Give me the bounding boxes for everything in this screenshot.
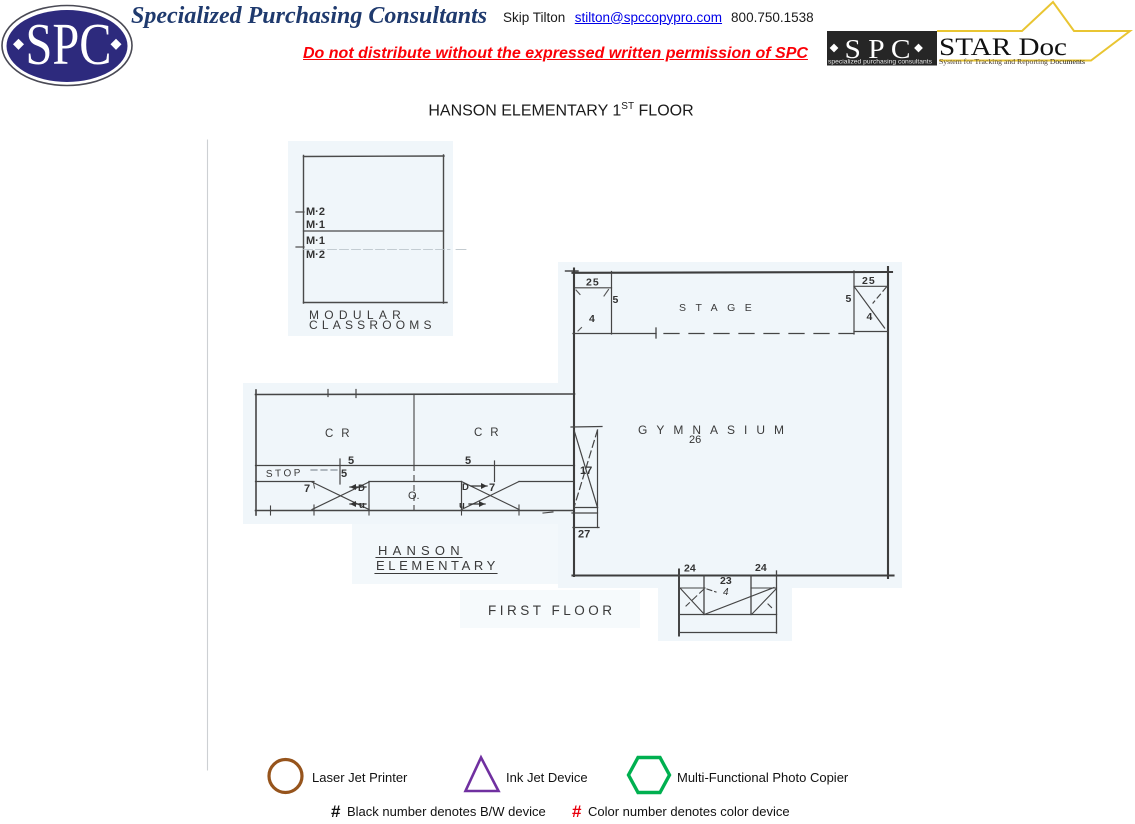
svg-text:O.: O. (408, 490, 420, 502)
svg-text:Multi-Functional Photo Copier: Multi-Functional Photo Copier (677, 770, 849, 785)
svg-text:M·1: M·1 (306, 235, 325, 247)
svg-text:Ink Jet Device: Ink Jet Device (506, 770, 588, 785)
svg-text:M·2: M·2 (306, 249, 325, 261)
svg-text:Laser Jet Printer: Laser Jet Printer (312, 770, 408, 785)
svg-text:D: D (462, 482, 469, 493)
svg-text:24: 24 (755, 562, 767, 574)
svg-text:23: 23 (720, 575, 732, 587)
svg-text:u: u (459, 500, 465, 511)
svg-text:GYMNASIUM: GYMNASIUM (638, 423, 793, 437)
svg-text:STOP: STOP (266, 468, 303, 480)
svg-text:25: 25 (586, 277, 600, 289)
svg-text:CLASSROOMS: CLASSROOMS (309, 318, 436, 332)
svg-text:5: 5 (465, 455, 471, 467)
svg-text:ELEMENTARY: ELEMENTARY (376, 558, 499, 573)
svg-text:5: 5 (348, 455, 354, 467)
svg-text:FIRST FLOOR: FIRST FLOOR (488, 603, 616, 618)
svg-text:#: # (572, 802, 582, 821)
svg-text:25: 25 (862, 275, 876, 287)
svg-text:7: 7 (489, 482, 495, 494)
svg-text:D: D (358, 483, 365, 494)
svg-text:5: 5 (341, 468, 347, 480)
svg-text:M·1: M·1 (306, 219, 325, 231)
svg-text:Color number denotes color dev: Color number denotes color device (588, 804, 790, 819)
svg-text:5: 5 (846, 293, 852, 305)
svg-text:#: # (331, 802, 341, 821)
svg-text:CR: CR (474, 427, 507, 439)
svg-text:4: 4 (867, 311, 873, 323)
svg-text:HANSON: HANSON (378, 543, 465, 558)
svg-text:26: 26 (689, 434, 701, 446)
svg-text:17: 17 (580, 465, 592, 477)
svg-text:4: 4 (723, 587, 729, 598)
svg-text:Black number denotes B/W devic: Black number denotes B/W device (347, 804, 546, 819)
svg-text:7: 7 (304, 483, 310, 495)
svg-text:M·2: M·2 (306, 206, 325, 218)
svg-text:27: 27 (578, 529, 590, 541)
svg-text:24: 24 (684, 563, 696, 575)
svg-text:4: 4 (589, 313, 595, 325)
svg-text:STAGE: STAGE (679, 302, 761, 314)
svg-text:5: 5 (613, 294, 619, 306)
svg-text:u: u (359, 500, 365, 511)
svg-text:CR: CR (325, 428, 358, 440)
